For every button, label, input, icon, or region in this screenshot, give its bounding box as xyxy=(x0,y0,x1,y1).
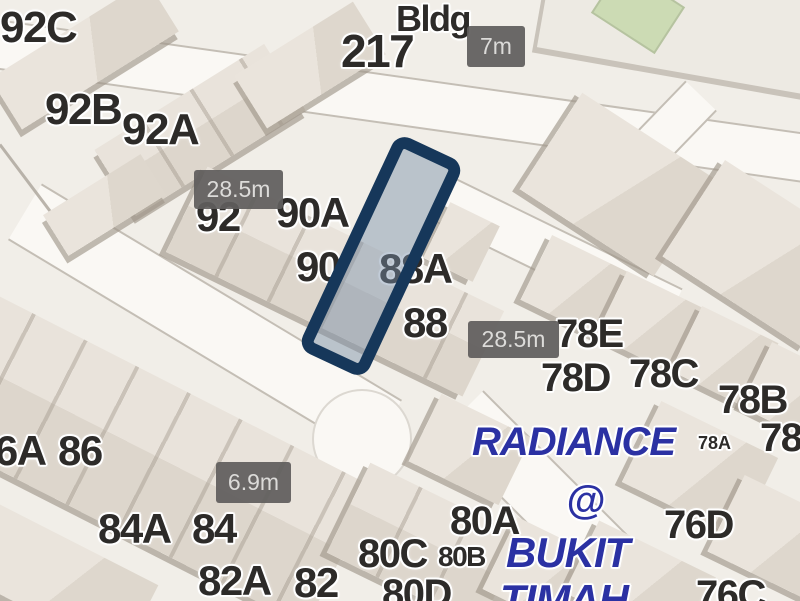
map-canvas[interactable]: Bldg21792C92B92A9290A9088A8878E78D78C78B… xyxy=(0,0,800,601)
height-badge-28.5m: 28.5m xyxy=(468,321,559,358)
badges-layer: 7m28.5m28.5m6.9m xyxy=(0,0,800,601)
height-badge-28.5m: 28.5m xyxy=(194,170,283,209)
height-badge-6.9m: 6.9m xyxy=(216,462,291,503)
height-badge-7m: 7m xyxy=(467,26,525,67)
